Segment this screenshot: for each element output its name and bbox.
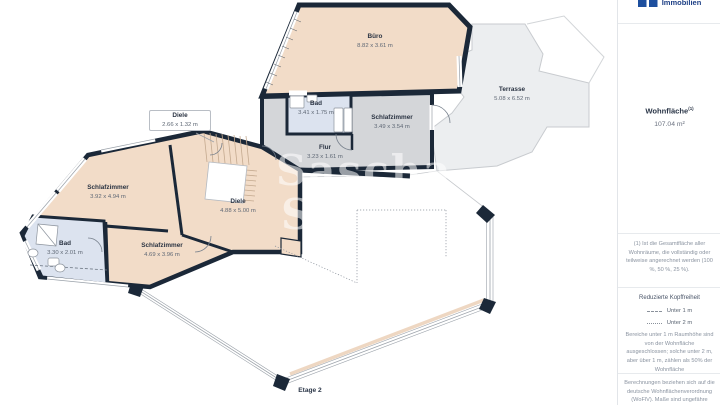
dashed-line-icon (647, 311, 662, 312)
room-callout-diele: Diele 2.66 x 1.32 m (149, 110, 211, 131)
living-area-label: Wohnfläche (645, 107, 688, 116)
room-dims: 3.41 x 1.75 m (298, 109, 334, 117)
divider (618, 287, 720, 288)
living-area-value: 107.04 m² (618, 121, 720, 128)
room-label-bad-unten: Bad 3.30 x 2.01 m (47, 240, 83, 257)
brand-logo-icon (638, 0, 658, 8)
room-label-terrasse: Terrasse 5.08 x 6.52 m (494, 86, 530, 103)
area-footnote-text: (1) Ist die Gesamtfläche aller Wohnräume… (624, 240, 715, 275)
room-dims: 3.49 x 3.54 m (371, 123, 413, 131)
floorplan-page: Sascha S Büro 8.82 x 3.61 m Terrasse 5.0… (0, 0, 720, 405)
room-name: Schlafzimmer (141, 242, 183, 251)
headroom-title: Reduzierte Kopffreiheit (618, 295, 720, 301)
headroom-text: Bereiche unter 1 m Raumhöhe sind von der… (624, 331, 715, 374)
living-area-block: Wohnfläche(1) 107.04 m² (618, 106, 720, 128)
room-dims: 5.08 x 6.52 m (494, 95, 530, 103)
legend-label: Unter 1 m (667, 308, 692, 314)
legend-under-2m: Unter 2 m (618, 320, 720, 326)
calculation-text: Berechnungen beziehen sich auf die deuts… (624, 379, 715, 405)
room-name: Bad (47, 240, 83, 249)
room-label-schlafzimmer-3: Schlafzimmer 4.69 x 3.96 m (141, 242, 183, 259)
divider (618, 373, 720, 374)
room-label-diele-gross: Diele 4.88 x 5.00 m (220, 198, 256, 215)
room-name: Büro (357, 33, 393, 42)
room-dims: 4.69 x 3.96 m (141, 251, 183, 259)
legend-under-1m: Unter 1 m (618, 308, 720, 314)
floor-title: Etage 2 (298, 387, 321, 394)
room-label-schlafzimmer-1: Schlafzimmer 3.49 x 3.54 m (371, 114, 413, 131)
room-dims: 4.88 x 5.00 m (220, 207, 256, 215)
floor-plan-drawing (0, 0, 617, 405)
room-label-bad-oben: Bad 3.41 x 1.75 m (298, 100, 334, 117)
info-sidebar: Immobilien Wohnfläche(1) 107.04 m² (1) I… (617, 0, 720, 405)
dotted-line-icon (647, 323, 662, 324)
room-name: Flur (307, 144, 343, 153)
room-name: Diele (152, 112, 208, 121)
living-area-title: Wohnfläche(1) (618, 106, 720, 116)
room-name: Schlafzimmer (371, 114, 413, 123)
room-label-buero: Büro 8.82 x 3.61 m (357, 33, 393, 50)
room-dims: 3.30 x 2.01 m (47, 249, 83, 257)
floor-plan: Sascha S Büro 8.82 x 3.61 m Terrasse 5.0… (0, 0, 617, 405)
divider (618, 233, 720, 234)
wall-fragment (281, 238, 301, 257)
room-label-schlafzimmer-2: Schlafzimmer 3.92 x 4.94 m (87, 184, 129, 201)
room-dims: 3.23 x 1.61 m (307, 153, 343, 161)
room-name: Schlafzimmer (87, 184, 129, 193)
room-name: Bad (298, 100, 334, 109)
brand-name: Immobilien (662, 0, 702, 7)
legend-label: Unter 2 m (667, 320, 692, 326)
room-dims: 8.82 x 3.61 m (357, 42, 393, 50)
brand-logo: Immobilien (618, 0, 720, 8)
room-dims: 2.66 x 1.32 m (152, 121, 208, 129)
room-dims: 3.92 x 4.94 m (87, 193, 129, 201)
room-label-flur: Flur 3.23 x 1.61 m (307, 144, 343, 161)
divider (618, 23, 720, 24)
living-area-footnote-mark: (1) (688, 106, 693, 111)
room-name: Diele (220, 198, 256, 207)
room-name: Terrasse (494, 86, 530, 95)
